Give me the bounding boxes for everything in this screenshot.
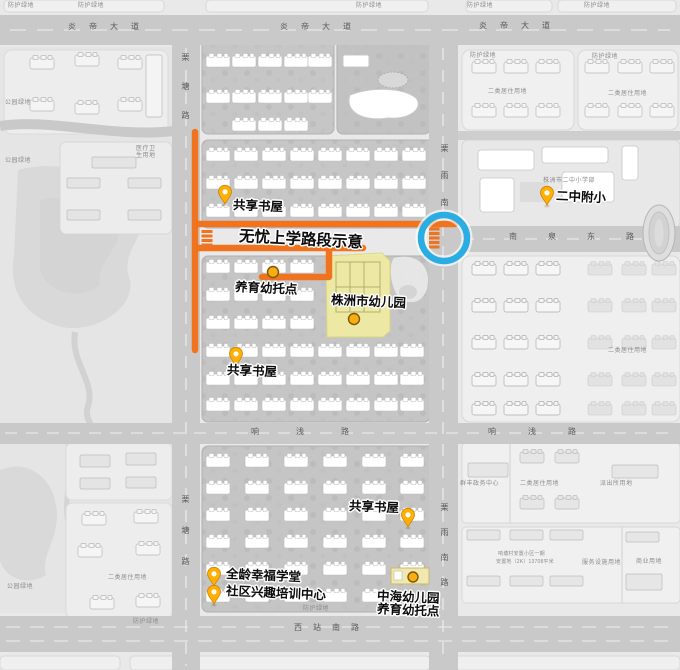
parcel-label-park-green-1: 公园绿地 xyxy=(5,100,31,106)
road-label-liyu-south: 栗雨南路 xyxy=(440,503,448,603)
road-label-xiangqian-west: 响浅路 xyxy=(251,428,386,436)
parcel-label-protective-green-6: 防护绿地 xyxy=(470,53,496,59)
parcel-label-protective-green-5: 防护绿地 xyxy=(584,3,610,9)
parcel-label-residential-5: 二类居住用地 xyxy=(108,575,147,581)
road-label-xiangqian-east: 响浅路 xyxy=(488,428,608,436)
parcel-label-service-facilities: 服务设施用地 xyxy=(582,560,621,566)
road-label-yandi-avenue-2: 炎帝大道 xyxy=(280,23,364,31)
label-shared-book-house-2: 共享书屋 xyxy=(227,364,278,379)
road-label-xizhan-south: 西站南路 xyxy=(294,624,370,632)
label-zhonghai-kindergarten-line2: 养育幼托点 xyxy=(377,603,440,618)
parcel-label-protective-green-9: 防护绿地 xyxy=(133,619,159,625)
poi-dot-zhonghai xyxy=(408,572,418,582)
bottom-strips xyxy=(0,656,680,670)
poi-dot-nursery xyxy=(268,267,279,278)
parcel-label-medical-line1: 医疗卫 xyxy=(136,146,156,152)
parcel-label-protective-green-8: 防护绿地 xyxy=(303,606,329,612)
label-nursery-care-point: 养育幼托点 xyxy=(235,281,298,296)
parcel-label-residential-2: 二类居住用地 xyxy=(608,91,647,97)
parcel-label-protective-green-1: 防护绿地 xyxy=(8,3,34,9)
parcel-label-protective-green-4: 防护绿地 xyxy=(467,3,493,9)
parcel-label-resettlement-line1: 响塘村安置小区一期 xyxy=(498,552,545,557)
protective-green-strips xyxy=(4,0,676,12)
parcel-label-resettlement-line2: 安置地（2K）13708平米 xyxy=(496,560,554,565)
south-right-parcels xyxy=(462,443,680,603)
road-label-yandi-avenue-1: 炎帝大道 xyxy=(68,23,152,31)
parcel-label-protective-green-3: 防护绿地 xyxy=(356,3,382,9)
road-label-liyu-north: 栗雨南 xyxy=(440,144,448,225)
ne-residential-c xyxy=(202,140,434,228)
master-plan-map: 炎帝大道 炎帝大道 炎帝大道 栗塘路 栗塘路 栗雨南 栗雨南路 南泉东路 响浅路… xyxy=(0,0,680,670)
parcel-label-medical-line2: 生用地 xyxy=(136,153,156,159)
ne-campus-parcel xyxy=(337,38,430,134)
map-canvas xyxy=(0,0,680,670)
parcel-label-protective-green-7: 防护绿地 xyxy=(592,54,618,60)
ne-residential-a xyxy=(202,38,334,134)
se-residential-parcel xyxy=(462,256,680,422)
road-label-yandi-avenue-3: 炎帝大道 xyxy=(479,22,563,30)
label-zhuzhou-city-kindergarten: 株洲市幼儿园 xyxy=(331,294,406,310)
campus-oval xyxy=(378,72,408,88)
label-erzhong-affiliated-primary: 二中附小 xyxy=(556,190,607,205)
xizhan-south-road-surface xyxy=(0,616,680,652)
road-label-litang-north: 栗塘路 xyxy=(181,53,189,140)
parcel-label-commercial: 商业用地 xyxy=(636,559,662,565)
road-label-nanquan-east: 南泉东路 xyxy=(509,233,665,241)
road-label-litang-south: 栗塘路 xyxy=(181,495,189,588)
parcel-label-park-green-3: 公园绿地 xyxy=(7,584,33,590)
poi-dot-city-kindergarten xyxy=(349,314,360,325)
parcel-label-park-green-2: 公园绿地 xyxy=(5,158,31,164)
parcel-label-residential-3: 二类居住用地 xyxy=(608,348,647,354)
parcel-label-erzhong-campus: 株洲市二中小学部 xyxy=(543,178,595,184)
parcel-label-residential-1: 二类居住用地 xyxy=(488,89,527,95)
parcel-label-qunfeng-center: 群丰政务中心 xyxy=(460,481,499,487)
parcel-label-police-station: 派出所用地 xyxy=(600,481,633,487)
campus-building xyxy=(349,89,418,119)
parcel-label-residential-4: 二类居住用地 xyxy=(520,481,559,487)
sw-residential-parcel xyxy=(66,443,172,618)
label-all-age-happiness-school: 全龄幸福学堂 xyxy=(226,568,301,584)
parcel-label-protective-green-2: 防护绿地 xyxy=(78,3,104,9)
label-shared-book-house-1: 共享书屋 xyxy=(233,199,284,214)
label-shared-book-house-3: 共享书屋 xyxy=(349,500,400,515)
